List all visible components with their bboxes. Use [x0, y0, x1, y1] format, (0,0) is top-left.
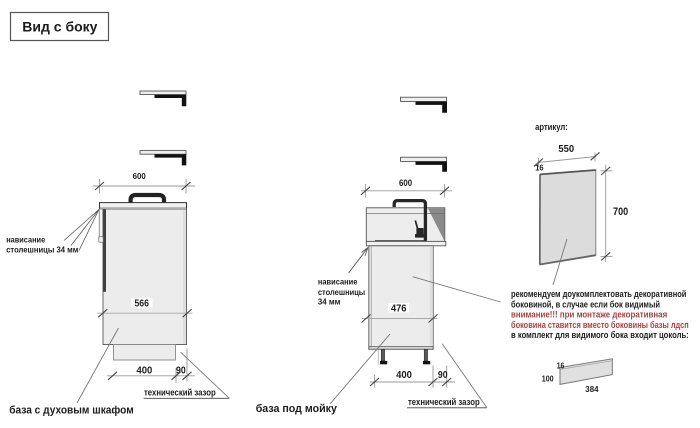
- svg-text:90: 90: [176, 366, 186, 377]
- svg-text:база под мойку: база под мойку: [256, 403, 338, 415]
- svg-text:боковина ставится вместо боков: боковина ставится вместо боковины базы л…: [511, 320, 689, 330]
- svg-text:400: 400: [137, 366, 153, 377]
- svg-text:столешницы 34 мм: столешницы 34 мм: [6, 244, 78, 254]
- svg-text:технический зазор: технический зазор: [408, 397, 480, 407]
- svg-text:внимание!!! при монтаже декора: внимание!!! при монтаже декоративная: [511, 309, 667, 319]
- svg-text:100: 100: [542, 374, 554, 384]
- svg-text:566: 566: [134, 299, 149, 310]
- svg-text:боковиной, в случае если бок в: боковиной, в случае если бок видимый: [511, 299, 660, 309]
- svg-text:Вид с боку: Вид с боку: [22, 19, 97, 35]
- svg-text:нависание: нависание: [318, 276, 358, 286]
- svg-text:476: 476: [391, 304, 407, 315]
- svg-text:90: 90: [438, 370, 448, 381]
- svg-text:база с духовым шкафом: база с духовым шкафом: [9, 405, 133, 417]
- svg-text:технический зазор: технический зазор: [144, 388, 216, 398]
- svg-text:600: 600: [399, 178, 412, 188]
- svg-text:550: 550: [558, 144, 574, 155]
- svg-text:в комплект для видимого бока в: в комплект для видимого бока входит цоко…: [511, 330, 689, 340]
- svg-text:рекомендуем доукомплектовать д: рекомендуем доукомплектовать декоративно…: [511, 289, 686, 299]
- svg-text:34 мм: 34 мм: [318, 297, 341, 307]
- svg-text:нависание: нависание: [6, 234, 45, 244]
- svg-text:16: 16: [557, 361, 565, 371]
- svg-text:600: 600: [133, 171, 146, 181]
- svg-text:400: 400: [396, 370, 412, 381]
- svg-text:16: 16: [535, 163, 544, 173]
- svg-text:384: 384: [585, 384, 598, 394]
- svg-text:столешницы: столешницы: [318, 287, 365, 297]
- svg-text:700: 700: [613, 206, 628, 218]
- svg-text:артикул:: артикул:: [535, 122, 568, 133]
